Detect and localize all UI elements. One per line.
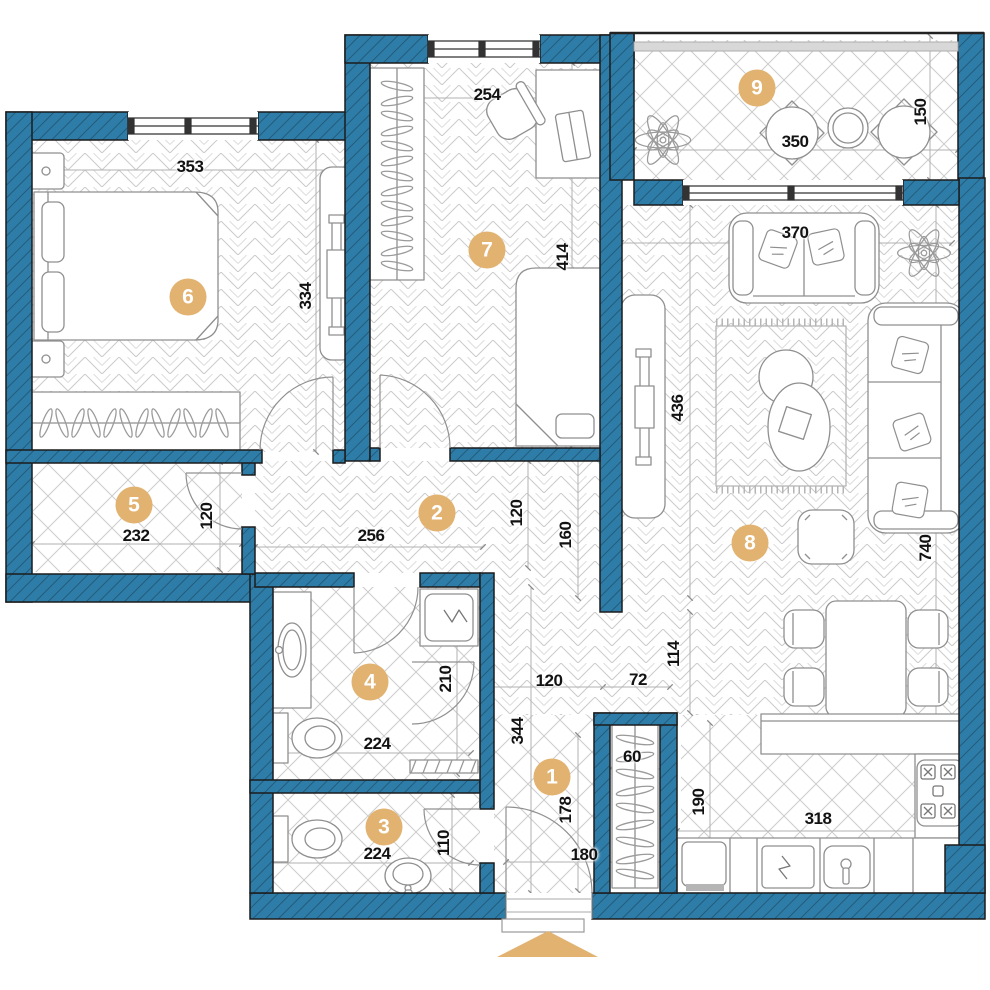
- dining-chair: [784, 668, 824, 706]
- dim-shower: 210: [436, 666, 456, 693]
- dim-balcony-width: 350: [782, 132, 809, 152]
- dim-living-height-right: 740: [916, 535, 936, 562]
- dim-passage-height: 114: [664, 641, 684, 667]
- window-bedroom6: [128, 112, 258, 140]
- dim-bath-door: 120: [536, 671, 563, 691]
- pillow: [42, 202, 64, 262]
- dim-wc-depth: 110: [434, 830, 454, 856]
- dim-wc-width: 224: [364, 844, 391, 864]
- pillow: [556, 414, 594, 438]
- dim-passage-width: 72: [629, 670, 647, 690]
- room-badge-3: 3: [366, 809, 403, 846]
- dim-storage-width: 232: [123, 526, 150, 546]
- dim-living-height-left: 436: [668, 395, 688, 422]
- window-living-balcony: [683, 180, 903, 205]
- dim-storage-door: 120: [197, 503, 217, 530]
- dim-room6-height: 334: [296, 283, 316, 310]
- room-badge-6: 6: [170, 279, 207, 316]
- dim-entry-length: 344: [508, 718, 528, 745]
- room-badge-7: 7: [469, 232, 506, 269]
- room-badge-9: 9: [739, 70, 776, 107]
- dining-table: [826, 601, 906, 717]
- toilet-tank: [273, 713, 288, 763]
- toilet-tank: [273, 816, 288, 862]
- dim-living-width: 370: [782, 223, 809, 243]
- balcony-railing: [634, 42, 958, 51]
- balcony-table: [828, 108, 868, 148]
- dim-room7-width: 254: [474, 85, 501, 105]
- stove: [917, 760, 963, 826]
- nightstand-knob: [42, 355, 50, 363]
- dim-room7-height: 414: [553, 244, 573, 271]
- window-bedroom7: [428, 35, 540, 63]
- coffee-table: [768, 383, 830, 471]
- room-badge-4: 4: [352, 664, 389, 701]
- floor-plan: 1 2 3 4 5 6 7 8 9 353 334 254 414 350 15…: [0, 0, 990, 990]
- dining-chair: [908, 668, 948, 706]
- room-badge-1: 1: [534, 759, 571, 796]
- dim-hall-width: 256: [358, 526, 385, 546]
- dim-entry-door: 180: [571, 845, 598, 865]
- peninsula-counter: [761, 714, 965, 754]
- dim-kitchen-depth: 190: [689, 789, 709, 816]
- fridge: [682, 842, 726, 886]
- pillow: [891, 481, 928, 518]
- dim-entry-width: 178: [556, 797, 576, 824]
- towel-radiator: [410, 760, 478, 773]
- dim-hall-depth: 120: [507, 500, 527, 527]
- dim-closet-width: 60: [623, 747, 641, 767]
- dim-bath-width: 224: [364, 734, 391, 754]
- pillow: [807, 228, 845, 266]
- entrance-arrow-icon: [497, 931, 598, 957]
- room-badge-2: 2: [419, 495, 456, 532]
- dim-balcony-depth: 150: [911, 99, 931, 126]
- dim-room6-width: 353: [177, 157, 204, 177]
- faucet: [276, 647, 283, 654]
- dim-hall-opening: 160: [556, 522, 576, 549]
- room-badge-5: 5: [116, 487, 153, 524]
- dining-chair: [908, 610, 948, 648]
- floors: [32, 40, 965, 893]
- dining-chair: [784, 610, 824, 648]
- dim-kitchen-width: 318: [805, 809, 832, 829]
- nightstand-knob: [42, 167, 50, 175]
- room-badge-8: 8: [732, 525, 769, 562]
- pillow: [42, 272, 64, 332]
